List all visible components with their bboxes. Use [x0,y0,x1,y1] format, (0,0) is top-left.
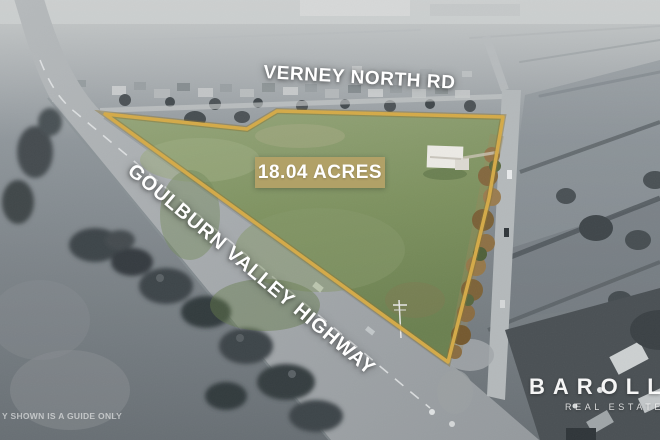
area-badge: 18.04 ACRES [255,157,385,188]
brand-name: BAROLLO [529,374,660,399]
aerial-photo-container: VERNEY NORTH RD 18.04 ACRES GOULBURN VAL… [0,0,660,440]
brand-watermark: BAROLLO REAL ESTATE [529,374,660,400]
brand-tagline: REAL ESTATE [565,402,660,412]
disclaimer-text: Y SHOWN IS A GUIDE ONLY [2,411,122,421]
